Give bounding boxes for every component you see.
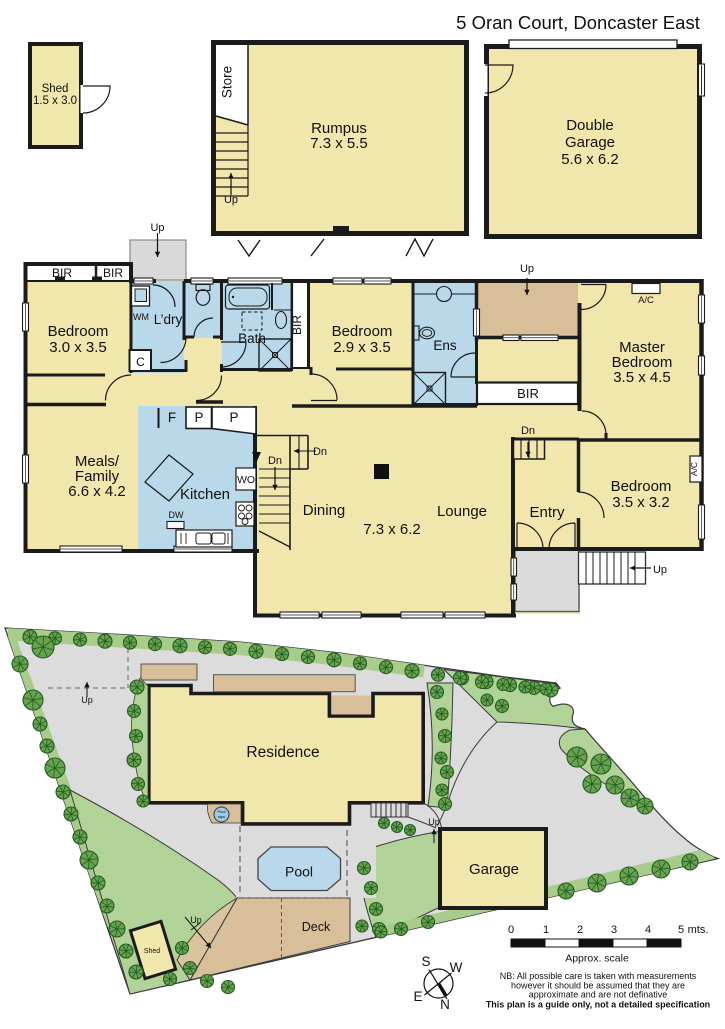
svg-text:5.6 x 6.2: 5.6 x 6.2 — [561, 151, 619, 168]
svg-text:1: 1 — [543, 924, 549, 936]
svg-text:Bath: Bath — [238, 331, 266, 346]
svg-text:Bedroom: Bedroom — [611, 478, 672, 495]
svg-text:Up: Up — [520, 263, 534, 275]
svg-text:Dn: Dn — [313, 446, 327, 458]
svg-text:Store: Store — [220, 66, 235, 98]
svg-text:Pool: Pool — [285, 864, 313, 880]
svg-text:This plan is a guide only, not: This plan is a guide only, not a detaile… — [486, 1000, 710, 1010]
svg-text:Entry: Entry — [529, 504, 565, 521]
svg-text:Up: Up — [653, 564, 667, 576]
svg-text:Approx. scale: Approx. scale — [565, 953, 629, 965]
svg-text:P: P — [229, 410, 238, 425]
svg-text:P: P — [194, 410, 203, 425]
svg-text:3.0 x 3.5: 3.0 x 3.5 — [49, 339, 107, 356]
svg-text:5: 5 — [678, 924, 684, 936]
svg-text:Dining: Dining — [303, 502, 346, 519]
svg-text:E: E — [413, 989, 422, 1004]
svg-text:Dn: Dn — [521, 425, 535, 437]
svg-text:7.3 x 6.2: 7.3 x 6.2 — [363, 521, 421, 538]
svg-text:approximate and are not defina: approximate and are not definative — [529, 990, 668, 1000]
svg-text:C: C — [136, 355, 145, 369]
svg-text:2: 2 — [577, 924, 583, 936]
svg-text:A/C: A/C — [638, 295, 654, 306]
svg-text:DW: DW — [169, 510, 184, 520]
svg-text:Lounge: Lounge — [437, 503, 487, 520]
svg-text:BIR: BIR — [103, 266, 123, 280]
svg-text:WM: WM — [133, 312, 149, 322]
svg-text:Garage: Garage — [469, 861, 519, 878]
svg-text:Ens: Ens — [433, 338, 457, 353]
svg-text:Up: Up — [150, 222, 164, 234]
svg-text:mts.: mts. — [688, 924, 709, 936]
svg-text:F: F — [168, 410, 176, 425]
svg-text:WO: WO — [237, 474, 255, 486]
svg-text:Double: Double — [566, 117, 614, 134]
svg-text:L’dry: L’dry — [154, 312, 183, 327]
svg-text:A/C: A/C — [689, 462, 699, 476]
svg-text:Residence: Residence — [246, 744, 319, 761]
svg-text:Up: Up — [224, 194, 238, 206]
svg-text:3.5 x 4.5: 3.5 x 4.5 — [613, 369, 671, 386]
svg-text:3.5 x 3.2: 3.5 x 3.2 — [612, 494, 670, 511]
svg-text:3: 3 — [611, 924, 617, 936]
svg-text:S: S — [421, 954, 430, 969]
svg-text:7.3 x 5.5: 7.3 x 5.5 — [310, 135, 368, 152]
svg-text:NB: All possible care is taken: NB: All possible care is taken with meas… — [500, 971, 697, 981]
svg-text:Bedroom: Bedroom — [332, 323, 393, 340]
svg-text:Bedroom: Bedroom — [48, 323, 109, 340]
svg-text:Shed: Shed — [42, 83, 69, 95]
svg-text:Garage: Garage — [565, 134, 615, 151]
svg-text:W: W — [450, 960, 463, 975]
svg-text:BIR: BIR — [517, 386, 539, 401]
svg-text:5 Oran Court, Doncaster East: 5 Oran Court, Doncaster East — [456, 12, 700, 33]
svg-text:Dn: Dn — [268, 455, 282, 467]
svg-text:BIR: BIR — [52, 266, 72, 280]
svg-text:Shed: Shed — [144, 948, 160, 955]
svg-text:Deck: Deck — [302, 920, 331, 934]
svg-text:BIR: BIR — [290, 315, 304, 335]
svg-text:1.5 x 3.0: 1.5 x 3.0 — [33, 95, 77, 107]
svg-text:6.6 x 4.2: 6.6 x 4.2 — [68, 483, 126, 500]
svg-text:stps: stps — [218, 814, 225, 819]
svg-text:2.9 x 3.5: 2.9 x 3.5 — [333, 339, 391, 356]
svg-text:4: 4 — [645, 924, 651, 936]
svg-text:Kitchen: Kitchen — [180, 486, 230, 503]
svg-text:N: N — [440, 997, 450, 1012]
svg-text:0: 0 — [508, 924, 514, 936]
